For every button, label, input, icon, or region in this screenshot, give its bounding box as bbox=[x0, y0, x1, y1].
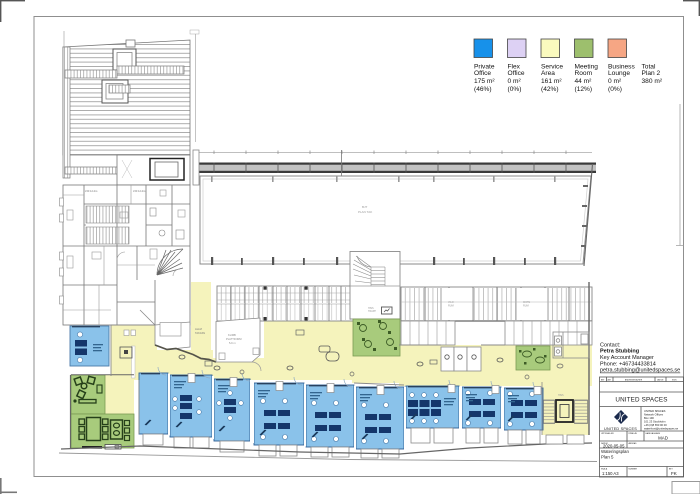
svg-text:RUM: RUM bbox=[523, 305, 529, 308]
svg-text:DATUM: DATUM bbox=[657, 379, 664, 382]
svg-text:TAKASS: TAKASS bbox=[195, 331, 205, 335]
svg-text:44 m²: 44 m² bbox=[575, 78, 593, 85]
svg-text:HISS: HISS bbox=[558, 394, 564, 397]
svg-text:Phone: +46734433814: Phone: +46734433814 bbox=[600, 361, 656, 367]
svg-text:161 m²: 161 m² bbox=[541, 78, 562, 85]
svg-text:NUMMER: NUMMER bbox=[629, 469, 638, 471]
svg-text:RITAD AV: RITAD AV bbox=[629, 432, 638, 435]
svg-text:(42%): (42%) bbox=[541, 86, 559, 93]
svg-text:(12%): (12%) bbox=[575, 86, 593, 93]
svg-text:(0%): (0%) bbox=[508, 86, 522, 93]
svg-text:2020-05-05: 2020-05-05 bbox=[603, 444, 625, 449]
svg-text:ÄNDRINGEN AVSER: ÄNDRINGEN AVSER bbox=[625, 379, 643, 382]
svg-text:Area: Area bbox=[541, 70, 555, 77]
svg-text:Plan 2: Plan 2 bbox=[642, 70, 661, 77]
svg-text:380 m²: 380 m² bbox=[642, 78, 663, 85]
svg-text:101 23 Stockholm: 101 23 Stockholm bbox=[644, 420, 666, 424]
svg-text:5-6 m: 5-6 m bbox=[229, 341, 236, 345]
svg-text:0 m²: 0 m² bbox=[608, 78, 622, 85]
svg-text:Wateringsplan: Wateringsplan bbox=[601, 449, 629, 454]
svg-text:UNITED SPACES: UNITED SPACES bbox=[644, 409, 666, 413]
svg-text:PLATTFORM: PLATTFORM bbox=[226, 337, 242, 341]
svg-text:L50 12-brs: L50 12-brs bbox=[85, 189, 98, 193]
svg-text:(0%): (0%) bbox=[608, 86, 622, 93]
svg-text:RUM: RUM bbox=[448, 305, 454, 308]
svg-text:BJT: BJT bbox=[362, 205, 368, 209]
svg-text:ANT: ANT bbox=[608, 379, 612, 382]
svg-text:Office: Office bbox=[474, 70, 491, 77]
svg-text:Network Offices: Network Offices bbox=[644, 413, 664, 417]
svg-text:Box 190: Box 190 bbox=[644, 416, 654, 420]
svg-text:(46%): (46%) bbox=[474, 86, 492, 93]
svg-text:ÄNDRAD: ÄNDRAD bbox=[629, 442, 638, 445]
svg-text:L50 12-brs: L50 12-brs bbox=[133, 189, 146, 193]
svg-text:Room: Room bbox=[575, 70, 593, 77]
svg-text:175 m²: 175 m² bbox=[474, 78, 495, 85]
svg-text:UPPDRAG.NR: UPPDRAG.NR bbox=[601, 432, 614, 435]
svg-text:0 m²: 0 m² bbox=[508, 78, 522, 85]
svg-text:KLIMB: KLIMB bbox=[228, 333, 236, 337]
svg-text:UNITED SPACES: UNITED SPACES bbox=[615, 397, 667, 404]
svg-text:Lounge: Lounge bbox=[608, 70, 630, 77]
svg-text:Key Account Manager: Key Account Manager bbox=[600, 355, 654, 361]
svg-text:UNITED SPACES: UNITED SPACES bbox=[604, 427, 637, 431]
svg-text:1:150 A3: 1:150 A3 bbox=[602, 471, 619, 476]
svg-text:Office: Office bbox=[508, 70, 525, 77]
svg-text:MAD: MAD bbox=[658, 436, 668, 441]
svg-text:ALLM: ALLM bbox=[195, 327, 202, 331]
svg-text:FK: FK bbox=[671, 471, 678, 476]
svg-text:petra.stubbing@unitedspaces.se: petra.stubbing@unitedspaces.se bbox=[600, 368, 680, 374]
svg-text:PLAN TAK: PLAN TAK bbox=[358, 210, 372, 214]
svg-text:waterfront@unitedspaces.se: waterfront@unitedspaces.se bbox=[644, 427, 679, 431]
svg-text:TRAPP: TRAPP bbox=[368, 310, 376, 313]
svg-text:Petra Stubbing: Petra Stubbing bbox=[600, 349, 639, 355]
svg-text:+46 (0)8 653 00 00: +46 (0)8 653 00 00 bbox=[644, 423, 667, 427]
svg-text:SIGN: SIGN bbox=[672, 380, 677, 382]
svg-text:Plan 5: Plan 5 bbox=[601, 455, 614, 460]
svg-text:Contact:: Contact: bbox=[600, 342, 621, 348]
